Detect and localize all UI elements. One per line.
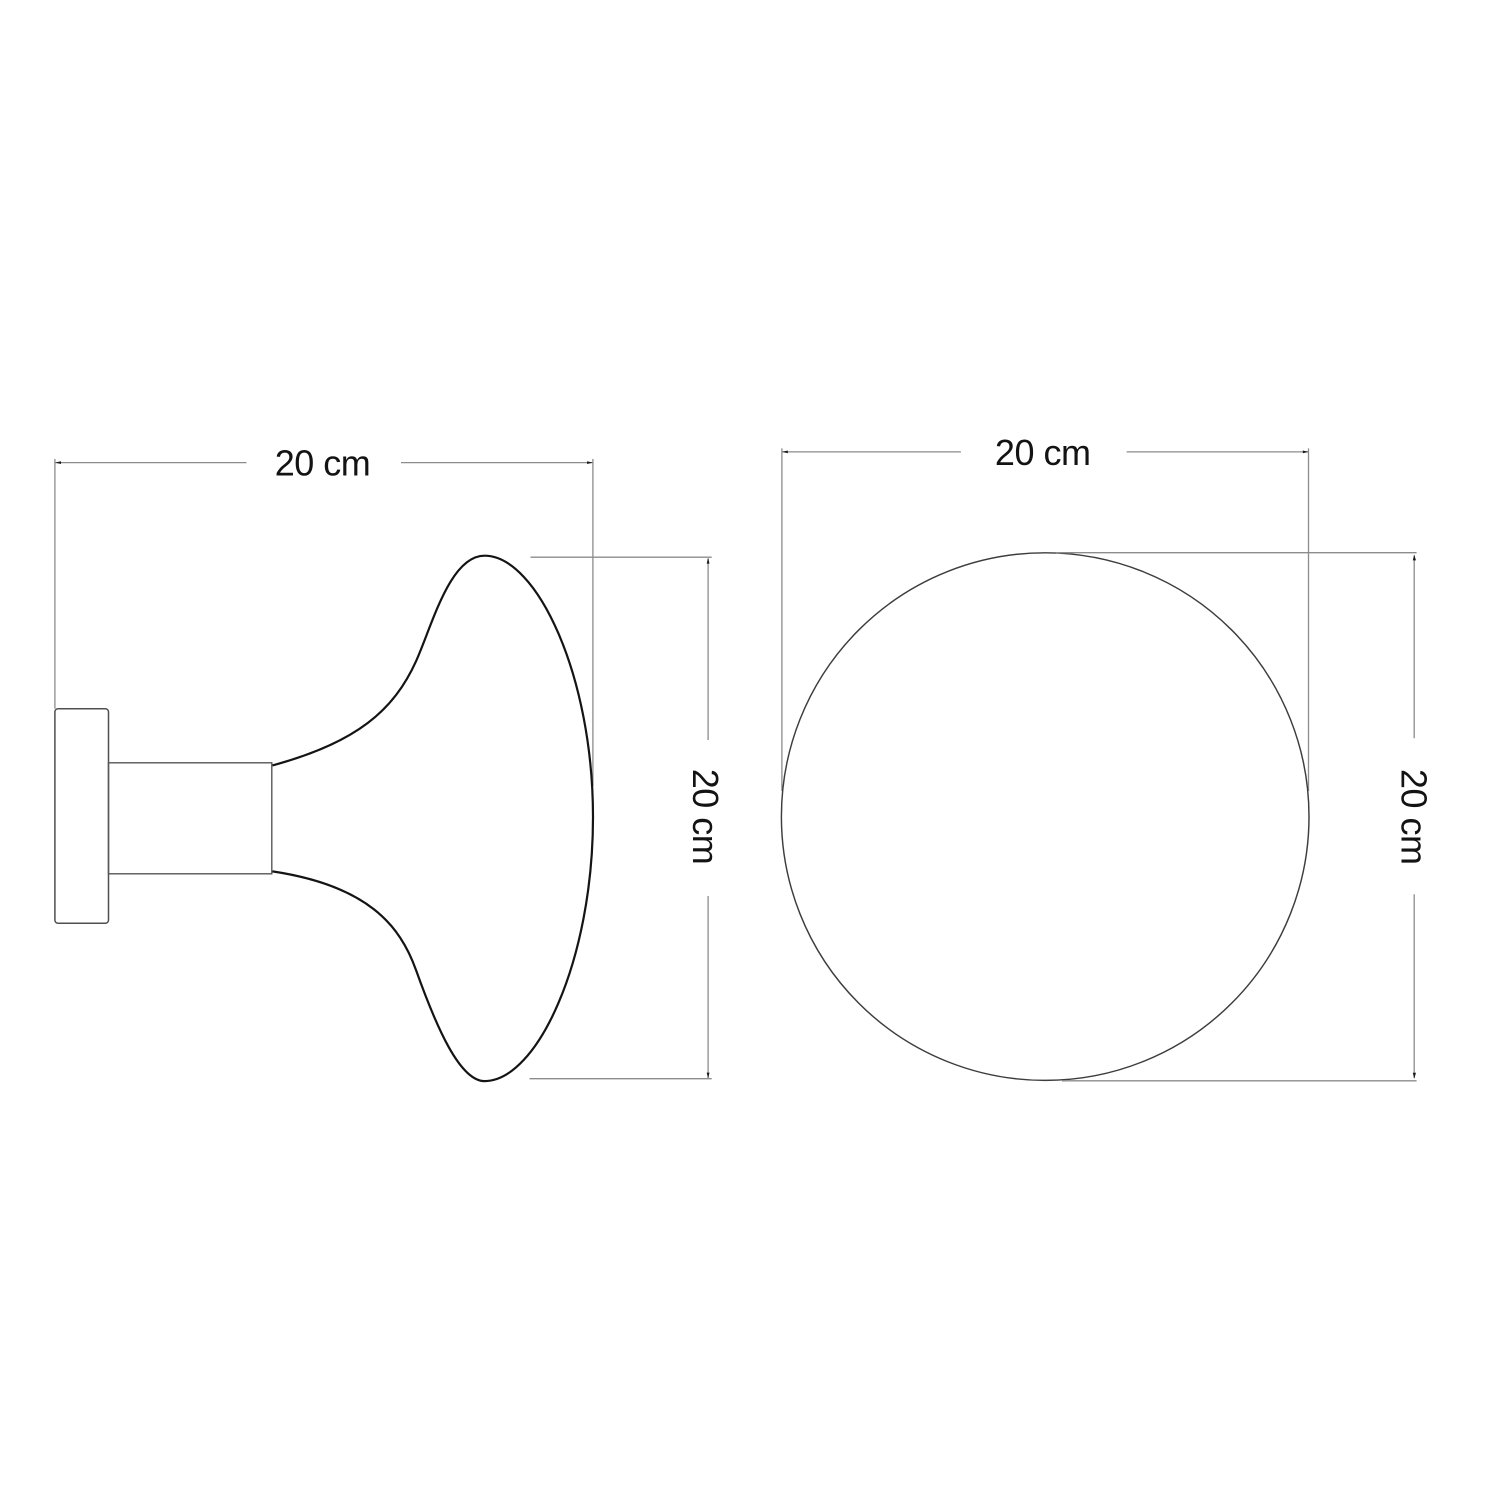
svg-text:20 cm: 20 cm [275, 443, 371, 484]
svg-text:20 cm: 20 cm [995, 432, 1091, 473]
svg-text:20 cm: 20 cm [1394, 769, 1435, 865]
svg-text:20 cm: 20 cm [685, 769, 726, 865]
